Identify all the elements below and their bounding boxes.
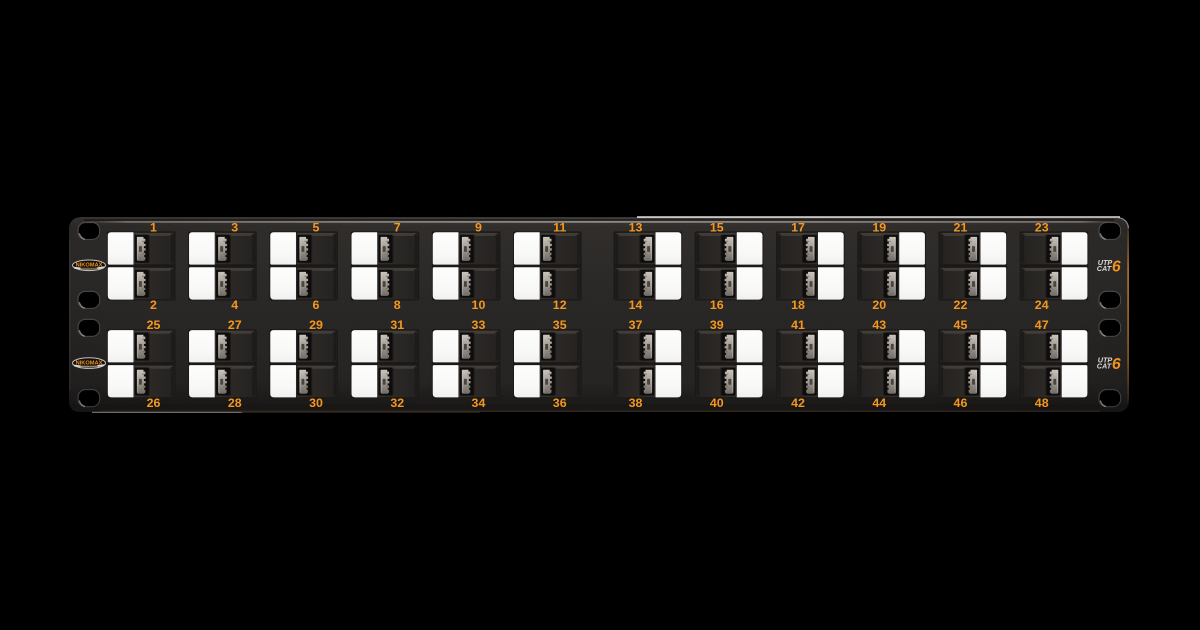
svg-text:CAT: CAT: [1097, 362, 1112, 371]
svg-text:7: 7: [394, 220, 401, 234]
svg-text:38: 38: [629, 396, 643, 410]
svg-text:6: 6: [1112, 356, 1121, 373]
svg-text:35: 35: [553, 318, 567, 332]
svg-text:19: 19: [872, 220, 886, 234]
svg-text:41: 41: [791, 318, 805, 332]
svg-text:15: 15: [710, 220, 724, 234]
svg-text:21: 21: [954, 220, 968, 234]
svg-text:6: 6: [313, 298, 320, 312]
svg-text:45: 45: [954, 318, 968, 332]
svg-text:46: 46: [954, 396, 968, 410]
svg-text:5: 5: [313, 220, 320, 234]
svg-text:CAT: CAT: [1097, 264, 1112, 273]
svg-text:39: 39: [710, 318, 724, 332]
svg-text:34: 34: [472, 396, 486, 410]
svg-text:23: 23: [1035, 220, 1049, 234]
svg-text:30: 30: [309, 396, 323, 410]
svg-text:29: 29: [309, 318, 323, 332]
svg-text:11: 11: [553, 220, 566, 234]
svg-text:8: 8: [394, 298, 401, 312]
svg-text:17: 17: [791, 220, 805, 234]
svg-text:14: 14: [629, 298, 643, 312]
svg-text:32: 32: [390, 396, 404, 410]
svg-text:22: 22: [954, 298, 968, 312]
svg-text:27: 27: [228, 318, 242, 332]
svg-text:28: 28: [228, 396, 242, 410]
svg-text:37: 37: [629, 318, 643, 332]
svg-text:33: 33: [472, 318, 486, 332]
svg-text:12: 12: [553, 298, 567, 312]
svg-text:9: 9: [475, 220, 482, 234]
svg-text:43: 43: [872, 318, 886, 332]
svg-text:24: 24: [1035, 298, 1049, 312]
svg-text:40: 40: [710, 396, 724, 410]
svg-text:6: 6: [1112, 258, 1121, 275]
svg-text:44: 44: [872, 396, 886, 410]
svg-text:10: 10: [472, 298, 486, 312]
svg-text:31: 31: [390, 318, 404, 332]
svg-text:42: 42: [791, 396, 805, 410]
svg-text:16: 16: [710, 298, 724, 312]
svg-text:26: 26: [147, 396, 161, 410]
svg-text:47: 47: [1035, 318, 1049, 332]
svg-text:48: 48: [1035, 396, 1049, 410]
svg-text:3: 3: [231, 220, 238, 234]
svg-text:13: 13: [629, 220, 643, 234]
svg-text:20: 20: [872, 298, 886, 312]
svg-text:1: 1: [150, 220, 157, 234]
svg-text:25: 25: [147, 318, 161, 332]
svg-text:4: 4: [231, 298, 238, 312]
svg-text:36: 36: [553, 396, 567, 410]
svg-text:18: 18: [791, 298, 805, 312]
svg-text:2: 2: [150, 298, 157, 312]
